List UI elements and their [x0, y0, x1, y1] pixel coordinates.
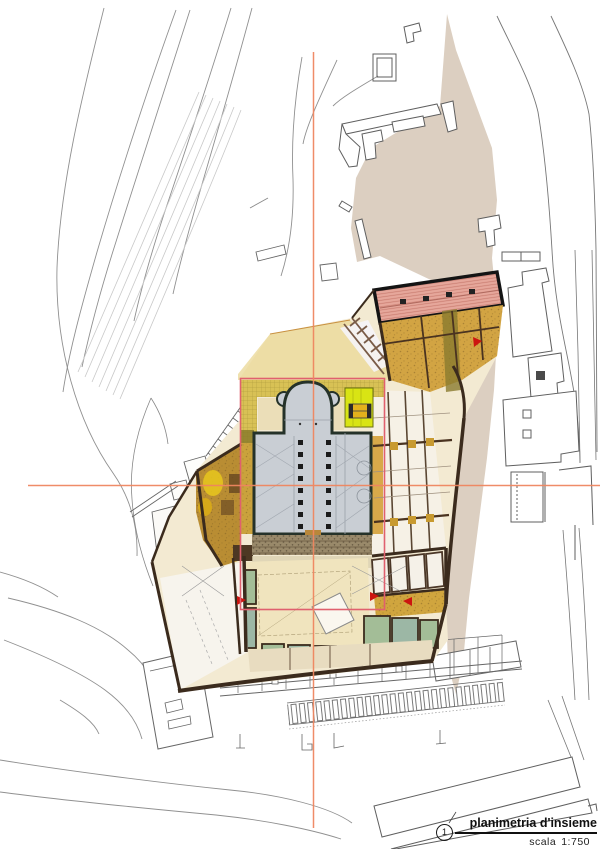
colonnade	[287, 679, 505, 725]
ramp-wash	[238, 318, 392, 380]
scale-value: 1:750	[556, 836, 590, 848]
scale-label: scala	[524, 836, 556, 848]
drawing-number-badge: 1	[436, 824, 453, 841]
drawing-title: planimetria d'insieme	[455, 816, 597, 834]
east-cells	[372, 552, 446, 618]
terrain-track-stripes	[78, 92, 241, 399]
east-building-lower	[503, 391, 579, 466]
drawing-sheet: 1 planimetria d'insieme scala1:750	[0, 0, 600, 849]
cloister-court	[238, 558, 370, 650]
worksite-highlight	[345, 388, 373, 427]
drawing-scale: scala1:750	[524, 836, 590, 848]
east-building-upper	[508, 268, 552, 357]
drawing-number: 1	[442, 827, 447, 838]
title-block: 1 planimetria d'insieme scala1:750	[430, 810, 598, 849]
site-plan-drawing	[0, 0, 600, 849]
